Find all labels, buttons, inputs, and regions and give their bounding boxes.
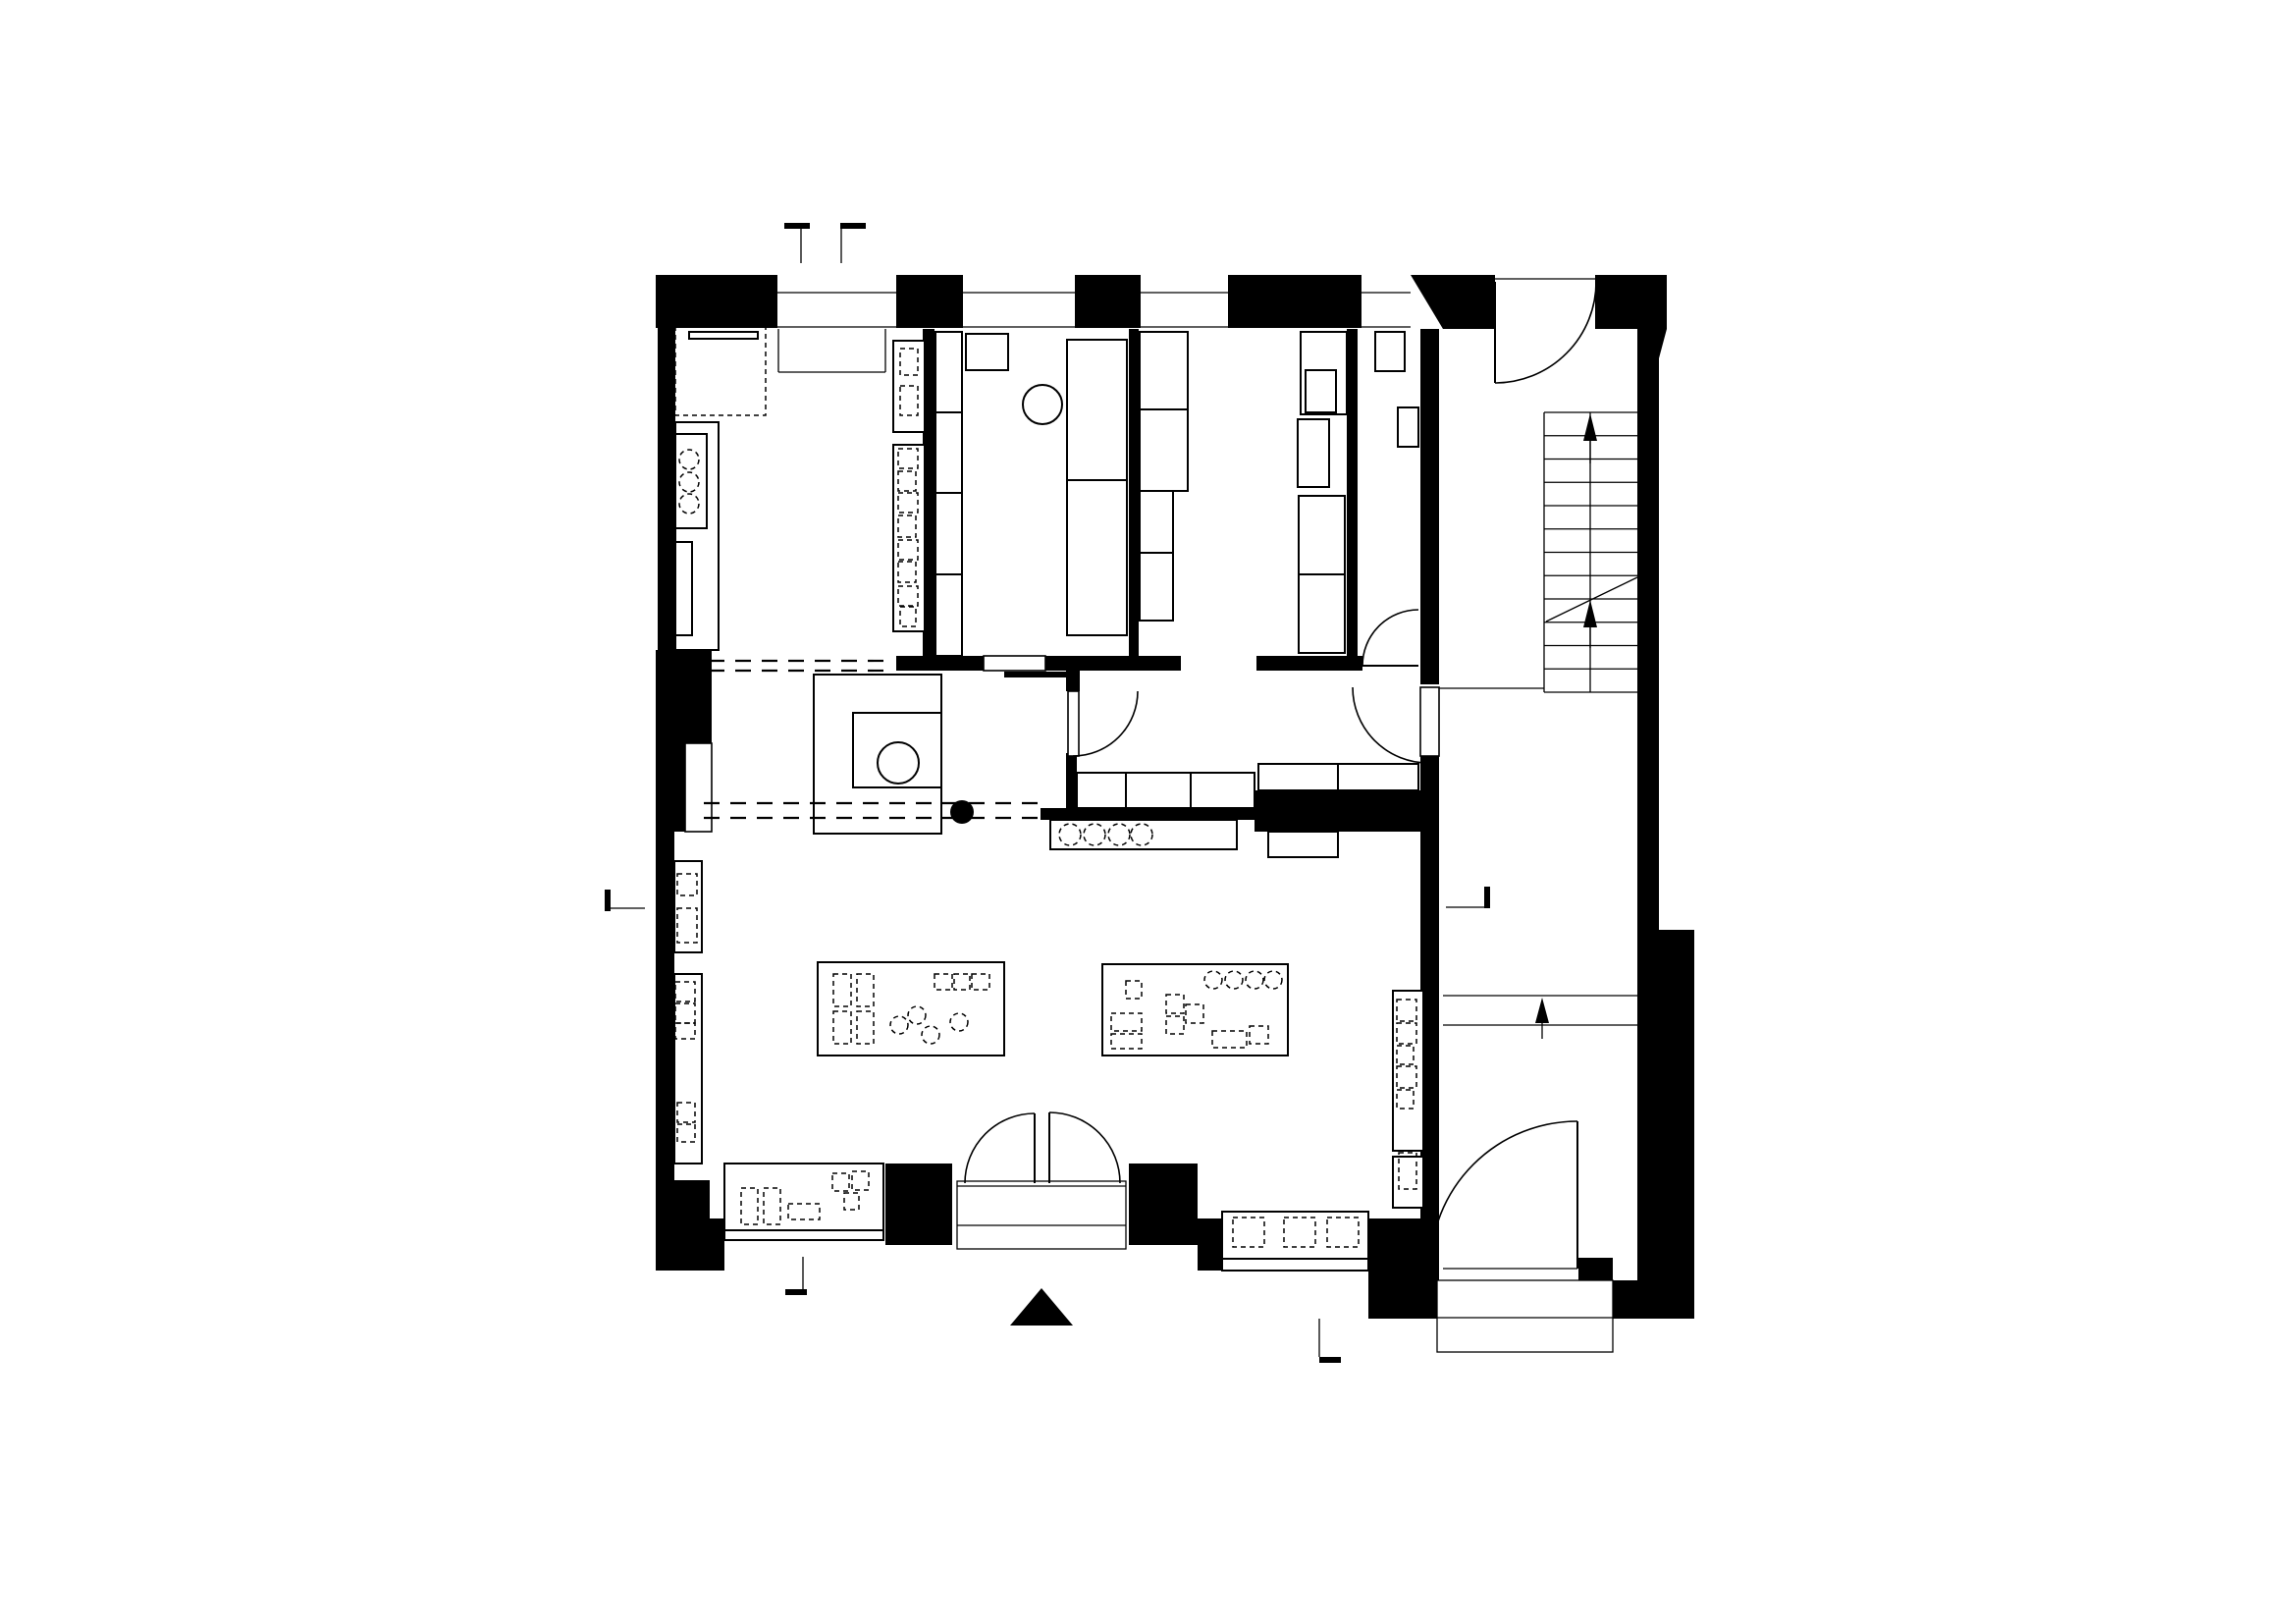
door-swing-arc-6 xyxy=(1430,1121,1577,1269)
wall-segment-19 xyxy=(1347,329,1358,658)
furniture-29 xyxy=(818,962,1004,1056)
door-swing-arc-4 xyxy=(965,1113,1035,1183)
wall-segment-21 xyxy=(1256,656,1362,671)
furniture-19 xyxy=(1299,574,1345,653)
wall-segment-2 xyxy=(1075,275,1141,328)
door-swing-arc-5 xyxy=(1049,1112,1120,1183)
wall-segment-23 xyxy=(1066,753,1077,817)
wall-segment-15 xyxy=(1637,329,1659,930)
furniture-18 xyxy=(1299,496,1345,574)
wall-segment-16 xyxy=(1637,930,1694,1319)
wall-segment-1 xyxy=(896,275,963,328)
furniture-24 xyxy=(1268,832,1338,857)
furniture-21 xyxy=(1398,407,1418,447)
opening-3 xyxy=(1068,691,1079,756)
furniture-17 xyxy=(1298,419,1329,487)
wall-segment-36 xyxy=(1319,1357,1341,1363)
wall-segment-14 xyxy=(1613,1280,1637,1319)
furniture-31 xyxy=(1050,820,1237,849)
opening-2 xyxy=(1420,687,1439,756)
wall-segment-4 xyxy=(1595,275,1667,329)
wall-segment-3 xyxy=(1228,275,1362,328)
furniture-11 xyxy=(1140,332,1188,409)
furniture-30 xyxy=(1102,964,1288,1056)
wall-segment-24 xyxy=(1041,808,1255,820)
wall-segment-10 xyxy=(885,1164,952,1245)
wall-segment-8 xyxy=(656,1180,710,1271)
furniture-26 xyxy=(674,974,702,1164)
furniture-28 xyxy=(1393,1157,1423,1208)
recess-outline-0 xyxy=(957,1181,1126,1249)
wall-segment-18 xyxy=(1129,329,1139,658)
furniture-25 xyxy=(674,861,702,952)
door-swing-arc-1 xyxy=(1362,610,1418,666)
wall-segment-11 xyxy=(1129,1164,1198,1245)
splayed-wall-wedge xyxy=(1411,275,1495,329)
wall-segment-25 xyxy=(1255,790,1423,832)
floor-plan-page xyxy=(0,0,2296,1624)
door-swing-arc-2 xyxy=(1073,691,1138,756)
wall-segment-7 xyxy=(656,832,674,1180)
wall-segment-5 xyxy=(658,275,675,650)
wall-segment-27 xyxy=(1420,756,1439,832)
wall-segment-34 xyxy=(1484,887,1490,908)
wall-segment-29 xyxy=(1004,672,1077,677)
furniture-2 xyxy=(675,434,707,528)
wall-segment-30 xyxy=(1578,1258,1613,1280)
wall-segment-31 xyxy=(784,223,810,229)
furniture-22 xyxy=(1077,773,1255,808)
column-dot-0 xyxy=(950,800,974,824)
wall-segment-26 xyxy=(1420,329,1439,684)
furniture-12 xyxy=(1140,409,1188,491)
furniture-34 xyxy=(1222,1212,1368,1259)
furniture-16 xyxy=(1306,370,1336,412)
wall-segment-35 xyxy=(785,1289,807,1295)
furniture-27 xyxy=(1393,991,1423,1151)
furniture-13 xyxy=(1140,491,1173,553)
wall-segment-12 xyxy=(1198,1218,1222,1271)
round-element-1 xyxy=(878,742,919,784)
corner-chamfer-wall xyxy=(1637,329,1667,358)
door-swing-arc-0 xyxy=(1495,282,1596,383)
dashed-item-0 xyxy=(675,327,766,415)
north-arrow-icon xyxy=(1010,1288,1073,1326)
round-element-0 xyxy=(1023,385,1062,424)
wall-segment-33 xyxy=(605,890,611,911)
furniture-33 xyxy=(724,1230,883,1240)
opening-1 xyxy=(984,656,1045,671)
step-arrow-head xyxy=(1535,998,1549,1023)
furniture-35 xyxy=(1222,1259,1368,1271)
furniture-20 xyxy=(1375,332,1405,371)
furniture-10 xyxy=(1067,340,1127,635)
furniture-14 xyxy=(1140,553,1173,621)
solid-lines-layer xyxy=(935,282,1577,1269)
floor-plan-svg xyxy=(0,0,2296,1624)
furniture-3 xyxy=(675,542,692,635)
wall-segment-32 xyxy=(840,223,866,229)
furniture-0 xyxy=(689,332,758,339)
furniture-9 xyxy=(966,334,1008,370)
wall-segment-9 xyxy=(710,1218,724,1271)
door-swing-arc-3 xyxy=(1353,687,1428,763)
recess-outline-1 xyxy=(1437,1280,1613,1352)
